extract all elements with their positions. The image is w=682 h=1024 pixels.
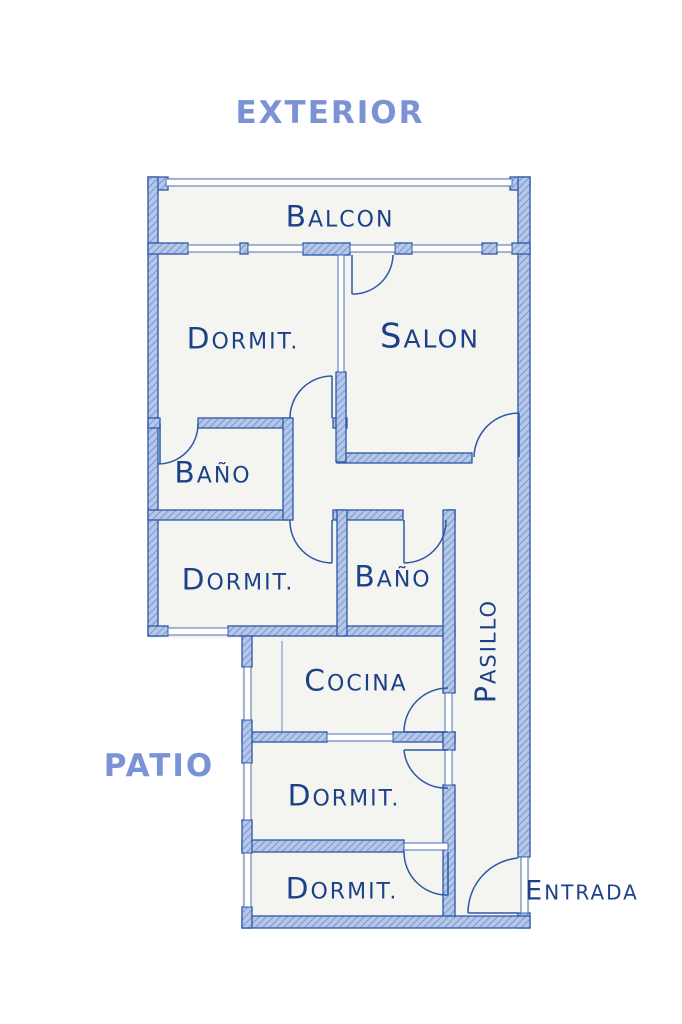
room-label-dormit-mid: Dormit. (182, 563, 295, 598)
room-label-salon: Salon (380, 317, 480, 356)
room-label-dormit-lower: Dormit. (288, 779, 401, 814)
room-label-cocina: Cocina (304, 664, 407, 699)
room-label-bano-mid: Baño (354, 560, 431, 595)
floor-plan-page: EXTERIOR PATIO Balcon Dormit. Salon Baño… (0, 0, 682, 1024)
exterior-label: EXTERIOR (235, 95, 424, 131)
floor-plan-drawing (0, 0, 682, 1024)
room-label-dormit-top: Dormit. (187, 322, 300, 357)
entrada-label: Entrada (525, 876, 639, 907)
patio-label: PATIO (104, 748, 215, 784)
room-label-dormit-bottom: Dormit. (286, 872, 399, 907)
room-label-pasillo: Pasillo (470, 599, 503, 703)
room-label-bano-top: Baño (174, 456, 251, 491)
room-label-balcon: Balcon (286, 200, 395, 235)
